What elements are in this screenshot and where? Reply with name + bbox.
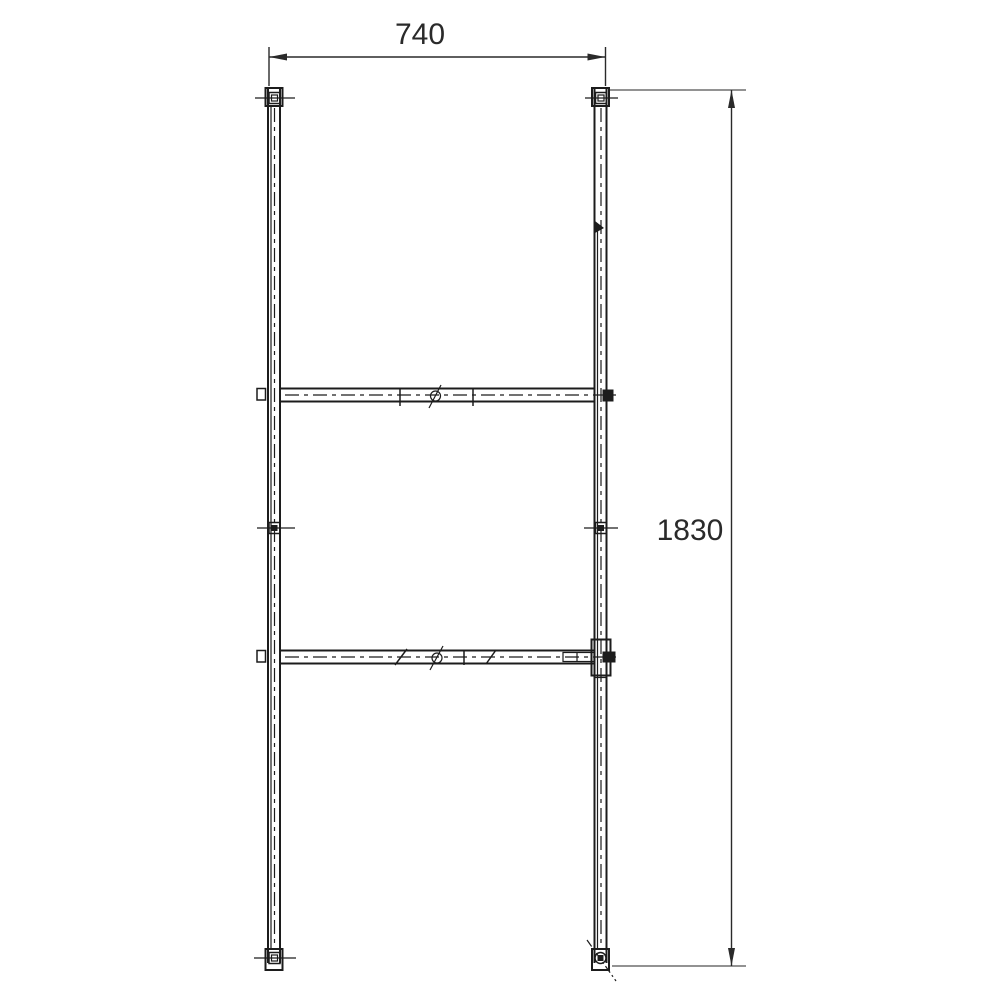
dim-arrow-left-icon: [269, 54, 287, 61]
dim-arrow-down-icon: [728, 948, 735, 966]
left-end-tab: [257, 389, 266, 401]
lower-crossbar: [257, 646, 619, 670]
technical-drawing: 740 1830: [0, 0, 1000, 1000]
tube-end-mark: [595, 221, 604, 233]
dim-arrow-up-icon: [728, 90, 735, 108]
frame-drawing-svg: 740 1830: [0, 0, 1000, 1000]
left-end-tab: [257, 651, 266, 663]
width-dimension-label: 740: [395, 18, 445, 51]
right-post: [584, 88, 618, 981]
left-post: [254, 88, 296, 970]
right-end-bracket: [603, 652, 616, 663]
upper-crossbar: [257, 385, 619, 408]
dim-arrow-right-icon: [588, 54, 606, 61]
width-dimension: 740: [269, 18, 606, 86]
right-end-bracket: [603, 390, 614, 402]
height-dimension-label: 1830: [657, 514, 724, 547]
height-dimension: 1830: [609, 90, 746, 966]
